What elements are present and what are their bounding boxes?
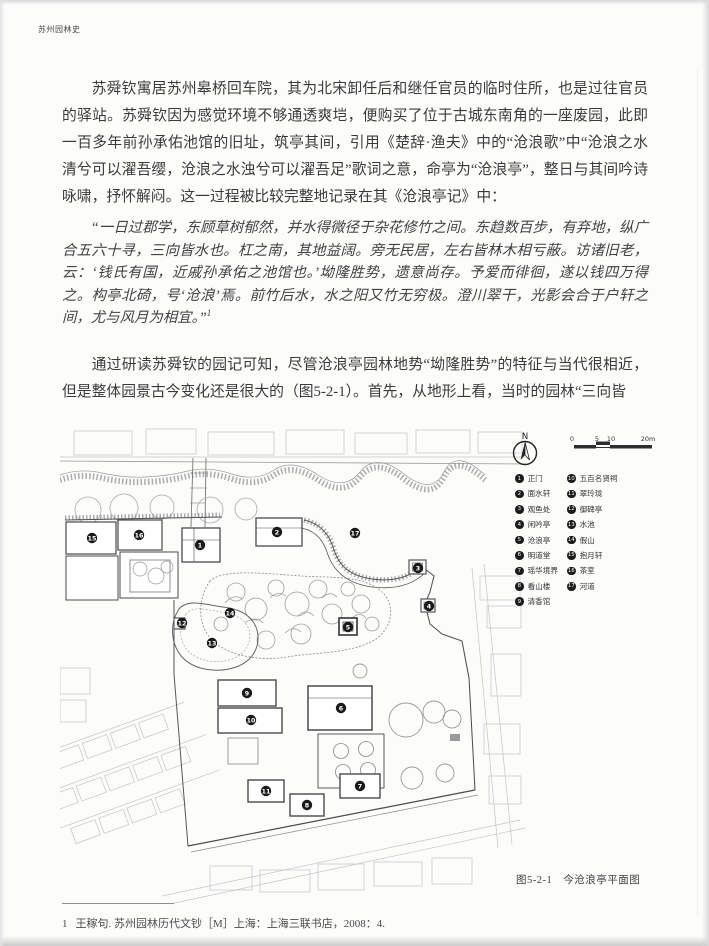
footnote: 1王稼句. 苏州园林历代文钞［M］上海：上海三联书店，2008：4. bbox=[62, 915, 385, 931]
svg-text:17: 17 bbox=[351, 530, 360, 537]
quote-text: “一日过郡学，东顾草树郁然，并水得微径于杂花修竹之间。东趋数百步，有弃地，纵广合… bbox=[62, 220, 648, 326]
paragraph-intro: 苏舜钦寓居苏州皋桥回车院，其为北宋卸任后和继任官员的临时住所，也是过往官员的驿站… bbox=[62, 76, 648, 211]
svg-text:2: 2 bbox=[275, 529, 279, 536]
figure-5-2-1: 1234567891011121314151617 N 0 5 10 20m 1… bbox=[60, 428, 666, 906]
legend-item-16: 16茶室 bbox=[567, 565, 618, 576]
map-marker-7: 7 bbox=[355, 781, 365, 791]
map-marker-10: 10 bbox=[246, 715, 256, 725]
pond bbox=[173, 603, 259, 670]
scan-edge-top bbox=[0, 0, 709, 5]
quote-paragraph: “一日过郡学，东顾草树郁然，并水得微径于杂花修竹之间。东趋数百步，有弃地，纵广合… bbox=[62, 217, 648, 330]
legend-item-9: 9清香馆 bbox=[515, 596, 558, 607]
svg-text:1: 1 bbox=[198, 542, 202, 549]
footnote-number: 1 bbox=[62, 918, 68, 930]
legend-item-15: 15抱月轩 bbox=[567, 550, 618, 561]
running-header: 苏州园林史 bbox=[38, 24, 81, 35]
legend-item-13: 13水池 bbox=[567, 519, 618, 530]
map-marker-6: 6 bbox=[336, 703, 346, 713]
map-marker-17: 17 bbox=[350, 528, 360, 538]
legend-item-6: 6明道堂 bbox=[515, 550, 558, 561]
map-marker-4: 4 bbox=[424, 601, 434, 611]
paragraph-analysis: 通过研读苏舜钦的园记可知，尽管沧浪亭园林地势“坳隆胜势”的特征与当代很相近，但是… bbox=[62, 352, 648, 406]
footnote-text: 王稼句. 苏州园林历代文钞［M］上海：上海三联书店，2008：4. bbox=[76, 918, 386, 930]
scan-edge-left bbox=[0, 0, 5, 946]
scan-edge-bottom bbox=[0, 936, 709, 946]
waterside-corridor bbox=[302, 520, 426, 588]
svg-text:16: 16 bbox=[135, 532, 144, 539]
scale-tick-20m: 20m bbox=[641, 435, 656, 443]
legend-item-2: 2面水轩 bbox=[515, 488, 558, 499]
legend-list: 1正门2面水轩3观鱼处4闲吟亭5沧浪亭6明道堂7瑶华境界8看山楼9清香馆 10五… bbox=[515, 473, 666, 607]
svg-text:8: 8 bbox=[305, 802, 309, 809]
scale-tick-0: 0 bbox=[570, 435, 574, 443]
legend-item-11: 11翠玲珑 bbox=[567, 488, 618, 499]
svg-text:7: 7 bbox=[358, 783, 362, 790]
map-legend: N 0 5 10 20m 1正门2面水轩3观鱼处4闲吟亭5沧浪亭6明道堂7瑶华境… bbox=[512, 430, 666, 607]
canal-river bbox=[60, 461, 525, 490]
svg-text:10: 10 bbox=[247, 717, 256, 724]
svg-text:13: 13 bbox=[208, 640, 217, 647]
legend-item-10: 10五百名贤祠 bbox=[567, 473, 618, 484]
north-arrow-icon: N bbox=[512, 430, 542, 468]
map-marker-12: 12 bbox=[177, 618, 187, 628]
footnote-ref: 1 bbox=[207, 308, 212, 318]
svg-text:5: 5 bbox=[346, 624, 350, 631]
svg-text:14: 14 bbox=[226, 610, 235, 617]
book-page: { "page": { "running_header": "苏州园林史", "… bbox=[0, 0, 709, 946]
figure-caption: 图5-2-1 今沧浪亭平面图 bbox=[516, 872, 640, 887]
legend-item-5: 5沧浪亭 bbox=[515, 535, 558, 546]
map-marker-11: 11 bbox=[261, 786, 271, 796]
map-marker-14: 14 bbox=[225, 608, 235, 618]
svg-text:9: 9 bbox=[245, 690, 249, 697]
map-marker-8: 8 bbox=[302, 800, 312, 810]
map-marker-13: 13 bbox=[207, 638, 217, 648]
map-marker-15: 15 bbox=[87, 533, 97, 543]
legend-item-1: 1正门 bbox=[515, 473, 558, 484]
garden-north-edge bbox=[65, 494, 257, 523]
north-buildings bbox=[66, 518, 302, 600]
map-marker-5: 5 bbox=[343, 622, 353, 632]
svg-text:6: 6 bbox=[339, 705, 344, 712]
scale-bar: 0 5 10 20m bbox=[542, 430, 660, 456]
legend-item-7: 7瑶华境界 bbox=[515, 565, 558, 576]
garden-east-wall bbox=[409, 560, 469, 678]
surrounding-fabric bbox=[60, 429, 525, 904]
legend-item-12: 12御碑亭 bbox=[567, 504, 618, 515]
svg-text:15: 15 bbox=[88, 535, 97, 542]
legend-item-3: 3观鱼处 bbox=[515, 504, 558, 515]
map-marker-2: 2 bbox=[272, 527, 282, 537]
legend-item-8: 8看山楼 bbox=[515, 581, 558, 592]
page-gutter-shadow bbox=[697, 70, 698, 916]
legend-item-14: 14假山 bbox=[567, 535, 618, 546]
legend-item-4: 4闲吟亭 bbox=[515, 519, 558, 530]
map-marker-9: 9 bbox=[242, 688, 252, 698]
svg-text:3: 3 bbox=[416, 565, 420, 572]
svg-text:12: 12 bbox=[178, 620, 187, 627]
svg-text:11: 11 bbox=[262, 788, 271, 795]
north-label: N bbox=[522, 432, 528, 442]
svg-text:4: 4 bbox=[427, 603, 432, 610]
garden-plan-map: 1234567891011121314151617 bbox=[60, 428, 525, 906]
map-marker-1: 1 bbox=[195, 540, 205, 550]
footnote-divider bbox=[62, 903, 174, 904]
legend-item-17: 17河道 bbox=[567, 581, 618, 592]
map-marker-3: 3 bbox=[413, 563, 423, 573]
map-marker-16: 16 bbox=[134, 530, 144, 540]
south-buildings bbox=[174, 600, 478, 852]
scan-edge-right bbox=[702, 0, 709, 946]
